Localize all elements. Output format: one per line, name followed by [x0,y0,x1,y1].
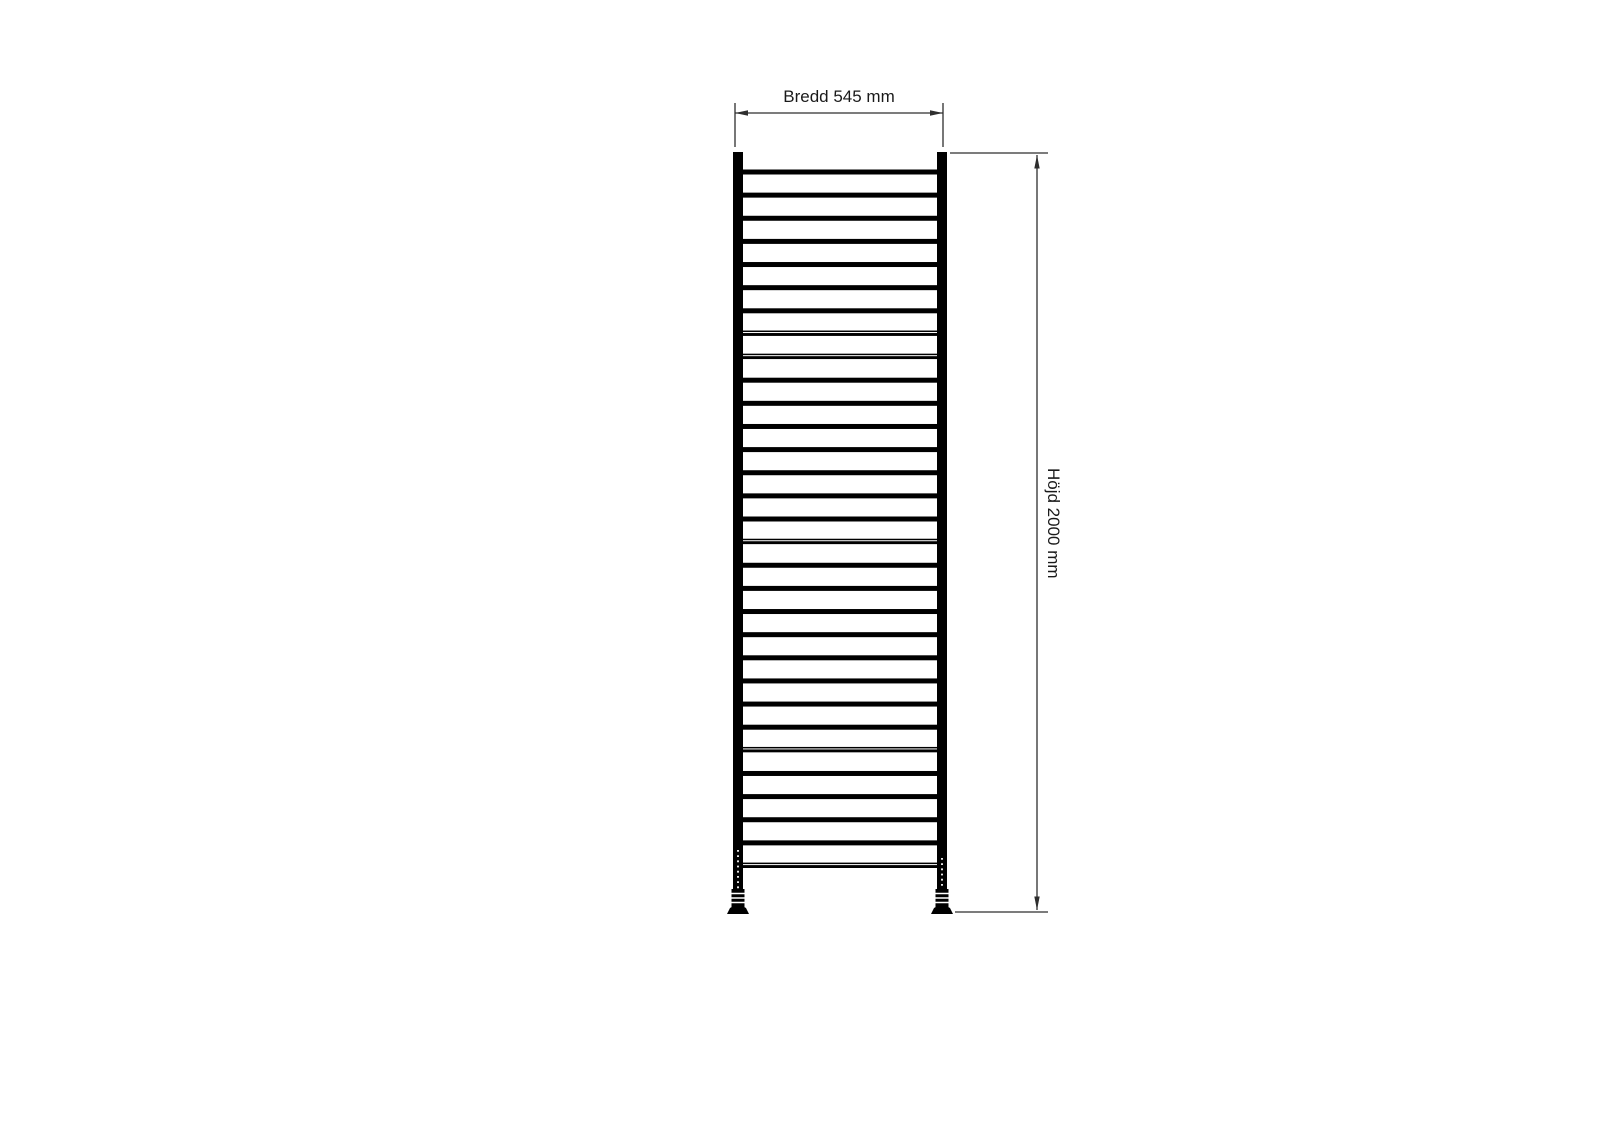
rung [741,563,939,568]
thin-shelf-rung [741,863,939,865]
rung [741,771,939,776]
rung [741,170,939,175]
rung [741,239,939,244]
width-arrow-right-icon [930,110,943,115]
right-foot-base [931,906,953,914]
rung [741,424,939,429]
rung [741,840,939,845]
rung [741,609,939,614]
rung [741,702,939,707]
thin-shelf-rung [741,749,939,752]
shelf-frame [727,152,953,914]
rung [741,493,939,498]
rung [741,817,939,822]
height-dimension-label: Höjd 2000 mm [1043,468,1063,579]
height-arrow-up-icon [1034,155,1039,169]
rung [741,193,939,198]
rung [741,401,939,406]
rung [741,216,939,221]
rungs [741,170,939,869]
rung [741,794,939,799]
width-dimension [735,103,943,147]
thin-shelf-rung [741,354,939,356]
thin-shelf-rung [741,356,939,359]
thin-shelf-rung [741,539,939,541]
rung [741,262,939,267]
rung [741,285,939,290]
rung [741,655,939,660]
rung [741,678,939,683]
drawing-canvas: Bredd 545 mm Höjd 2000 mm [0,0,1619,1127]
frame-drawing [0,0,1619,1127]
height-dimension [950,153,1048,912]
thin-shelf-rung [741,333,939,336]
rung [741,517,939,522]
width-arrow-left-icon [735,110,748,115]
rung [741,632,939,637]
rung [741,308,939,313]
rung [741,586,939,591]
rung [741,725,939,730]
left-foot-base [727,906,749,914]
rung [741,447,939,452]
right-foot [931,889,953,914]
thin-shelf-rung [741,865,939,868]
thin-shelf-rung [741,541,939,544]
rung [741,470,939,475]
width-dimension-label: Bredd 545 mm [735,87,943,107]
rung [741,378,939,383]
height-arrow-down-icon [1034,897,1039,911]
thin-shelf-rung [741,747,939,749]
thin-shelf-rung [741,331,939,333]
left-foot [727,889,749,914]
